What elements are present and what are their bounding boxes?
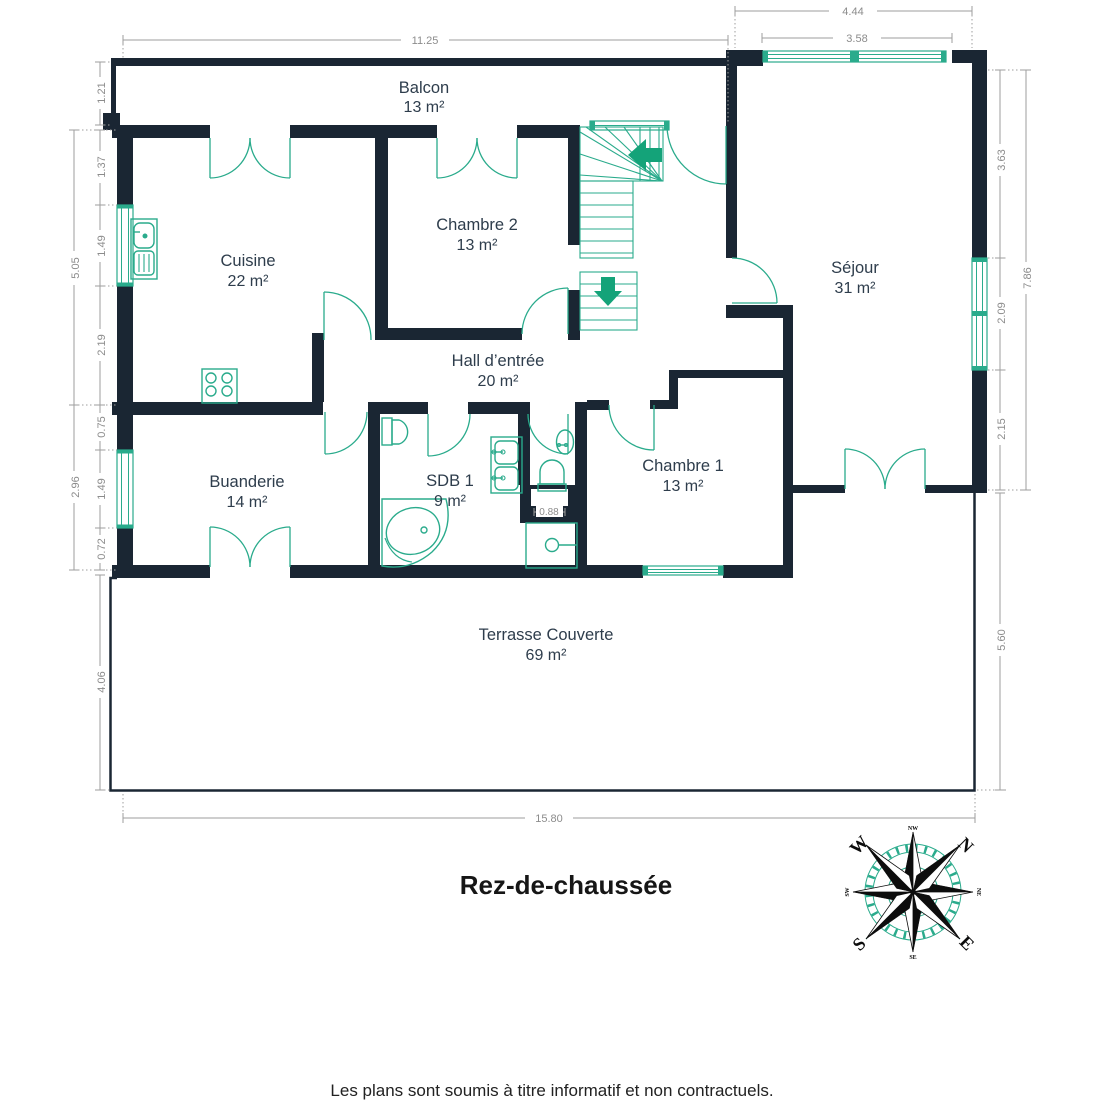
svg-text:Chambre 1: Chambre 1 (642, 457, 724, 475)
fixtures (131, 219, 577, 568)
door-hall-sdb1 (428, 414, 470, 456)
door-balcony-kitchen (210, 138, 290, 178)
svg-text:13 m²: 13 m² (457, 237, 499, 254)
dim-bottom-main: 15.80 (123, 794, 975, 825)
svg-text:20 m²: 20 m² (478, 373, 520, 390)
stairs-up-arrow-icon (628, 139, 662, 171)
svg-text:E: E (956, 932, 979, 955)
svg-text:N: N (954, 833, 977, 856)
stairs-down-arrow-icon (594, 277, 622, 306)
svg-text:1.21: 1.21 (96, 82, 108, 103)
svg-text:5.05: 5.05 (70, 257, 82, 278)
washbasin-wc-icon (557, 430, 574, 454)
door-hall-wc (528, 414, 568, 454)
svg-text:Cuisine: Cuisine (220, 252, 275, 270)
compass-rose-icon: W N S E NW NE SE SW (845, 826, 981, 961)
svg-text:Hall d’entrée: Hall d’entrée (452, 352, 545, 370)
door-hall-chambre1 (609, 405, 654, 450)
svg-text:31 m²: 31 m² (835, 280, 877, 297)
room-label-chambre2: Chambre 2 13 m² (436, 216, 518, 254)
room-label-sdb1: SDB 1 9 m² (426, 472, 474, 510)
dim-right-c: 2.15 (993, 370, 1008, 490)
dim-left-upper-b: 1.49 (93, 205, 117, 286)
svg-text:2.19: 2.19 (96, 334, 108, 355)
svg-text:13 m²: 13 m² (404, 99, 446, 116)
svg-text:Séjour: Séjour (831, 259, 879, 277)
door-balcony-chambre2 (437, 138, 517, 178)
dim-right-a: 3.63 (988, 70, 1032, 258)
door-hall-sejour (732, 258, 777, 303)
room-label-balcon: Balcon 13 m² (399, 79, 449, 116)
dim-left-upper-c: 2.19 (93, 286, 108, 405)
room-label-cuisine: Cuisine 22 m² (220, 252, 275, 290)
vanity-double-basin-icon (491, 437, 522, 493)
svg-text:4.44: 4.44 (842, 6, 863, 18)
dim-left-lower-c: 0.72 (93, 528, 108, 570)
stove-icon (202, 369, 237, 403)
dim-right-b: 2.09 (988, 258, 1008, 370)
door-buanderie-terrace (210, 527, 290, 567)
window-chambre1 (643, 566, 723, 575)
door-chambre2-hall (522, 288, 568, 334)
svg-text:1.37: 1.37 (96, 156, 108, 177)
window-buanderie (117, 450, 133, 528)
svg-text:1.49: 1.49 (96, 235, 108, 256)
window-stairs (590, 121, 669, 130)
svg-text:15.80: 15.80 (535, 813, 563, 825)
dim-left-lower-total: 2.96 (67, 405, 117, 570)
disclaimer-text: Les plans sont soumis à titre informatif… (0, 1081, 1104, 1101)
svg-text:1.49: 1.49 (96, 478, 108, 499)
svg-text:9 m²: 9 m² (434, 493, 467, 510)
shower-icon (526, 523, 577, 568)
dim-left-lower-b: 1.49 (93, 450, 117, 528)
svg-text:3.63: 3.63 (996, 149, 1008, 170)
svg-text:2.15: 2.15 (996, 418, 1008, 439)
room-label-terrasse: Terrasse Couverte 69 m² (479, 626, 614, 664)
dim-wc-niche: 0.88 (534, 506, 565, 518)
svg-text:Terrasse Couverte: Terrasse Couverte (479, 626, 614, 644)
svg-text:13 m²: 13 m² (663, 478, 705, 495)
room-label-hall: Hall d’entrée 20 m² (452, 352, 545, 390)
svg-text:NE: NE (975, 888, 981, 896)
door-kitchen-hall (324, 292, 371, 340)
window-sejour-north (763, 51, 946, 62)
dim-left-upper-total: 5.05 (67, 130, 117, 405)
dim-top-right-inner: 3.58 (762, 31, 952, 45)
floor-title: Rez-de-chaussée (406, 870, 726, 901)
svg-text:7.86: 7.86 (1022, 267, 1034, 288)
window-sejour-east (972, 258, 987, 370)
svg-text:14 m²: 14 m² (227, 494, 269, 511)
svg-text:NW: NW (908, 826, 918, 832)
dim-left-terrace: 4.06 (93, 575, 110, 790)
svg-text:69 m²: 69 m² (526, 647, 568, 664)
svg-text:5.60: 5.60 (996, 629, 1008, 650)
svg-text:3.58: 3.58 (846, 33, 867, 45)
svg-text:0.72: 0.72 (96, 538, 108, 559)
svg-text:4.06: 4.06 (96, 671, 108, 692)
room-label-chambre1: Chambre 1 13 m² (642, 457, 724, 495)
svg-text:W: W (846, 832, 873, 859)
svg-text:Buanderie: Buanderie (209, 473, 284, 491)
svg-text:Balcon: Balcon (399, 79, 449, 97)
svg-text:2.96: 2.96 (70, 476, 82, 497)
dim-right-terrace: 5.60 (977, 493, 1008, 790)
kitchen-sink-icon (131, 219, 157, 279)
svg-text:0.75: 0.75 (96, 416, 108, 437)
svg-text:2.09: 2.09 (996, 302, 1008, 323)
room-label-buanderie: Buanderie 14 m² (209, 473, 284, 511)
door-hall-buanderie (325, 412, 367, 454)
svg-text:Chambre 2: Chambre 2 (436, 216, 518, 234)
svg-text:11.25: 11.25 (412, 35, 439, 47)
svg-text:SW: SW (845, 887, 851, 896)
svg-text:0.88: 0.88 (539, 507, 559, 518)
svg-text:SDB 1: SDB 1 (426, 472, 474, 490)
floor-plan-page: 11.25 4.44 3.58 1.21 (0, 0, 1104, 1104)
svg-text:S: S (848, 933, 869, 954)
floor-plan-drawing: 11.25 4.44 3.58 1.21 (0, 0, 1104, 1104)
door-sejour-terrace (845, 449, 925, 489)
door-entry (667, 126, 726, 184)
svg-text:22 m²: 22 m² (228, 273, 270, 290)
dim-left-upper-a: 1.37 (93, 130, 117, 205)
svg-text:SE: SE (909, 955, 916, 961)
staircase (580, 127, 663, 330)
room-label-sejour: Séjour 31 m² (831, 259, 879, 297)
toilet-sdb1-icon (382, 418, 408, 445)
